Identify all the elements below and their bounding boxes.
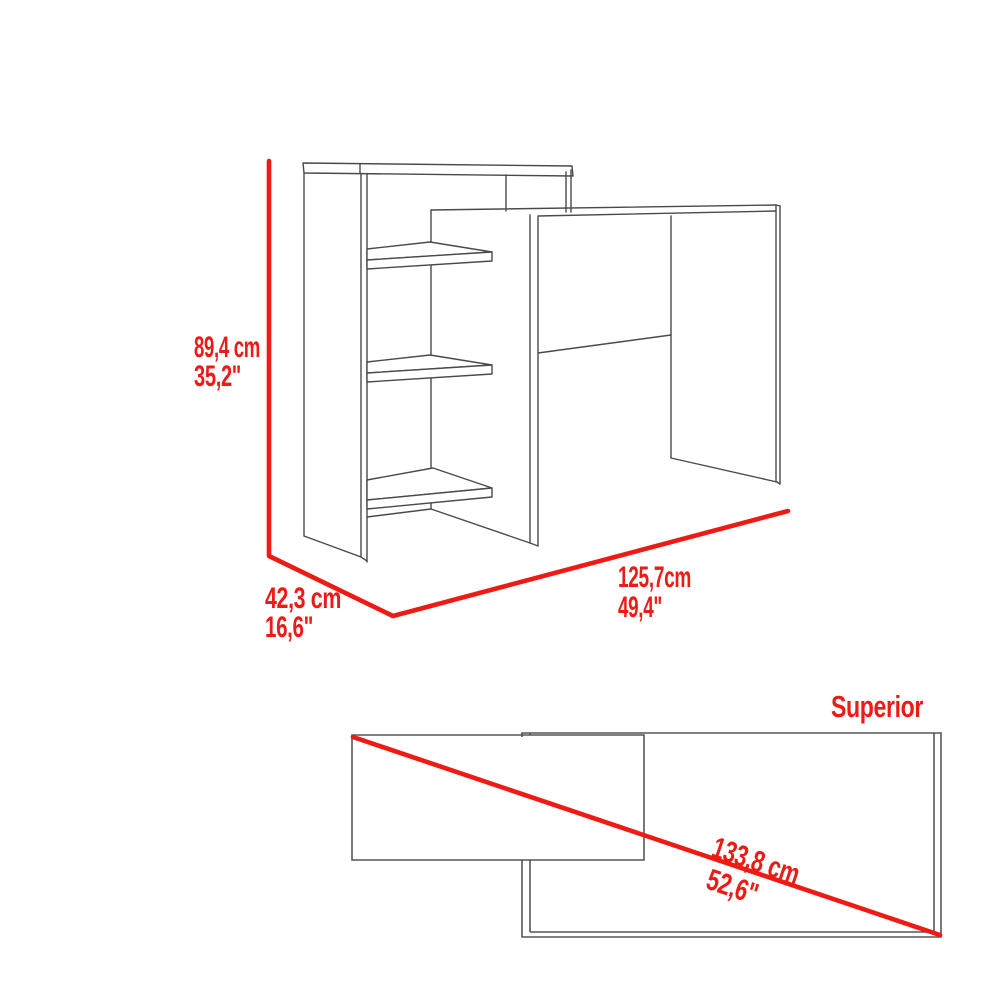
diagram-canvas: 89,4 cm 35,2" 42,3 cm 16,6" 125,7cm 49,4… (0, 0, 1000, 1000)
bookcase-floor-edge-left (367, 509, 431, 517)
height-depth-width-dimension-line (269, 161, 788, 616)
desk-top-front-edge (538, 211, 776, 216)
dimension-lines (269, 161, 788, 616)
shelf-top (367, 242, 492, 269)
bookcase-left-panel-bottom-edge (304, 536, 367, 561)
desk-back-stretcher (538, 335, 671, 353)
bookcase-top-slab (303, 163, 573, 176)
depth-inches-label: 16,6" (265, 611, 313, 644)
top-view-title: Superior (831, 689, 923, 724)
desk-right-panel-bottom-edge (671, 458, 777, 482)
shelf-bottom (367, 468, 492, 509)
isometric-view (303, 163, 780, 562)
height-inches-label: 35,2" (194, 360, 241, 393)
width-cm-label: 125,7cm (618, 561, 691, 594)
shelf-middle (367, 355, 492, 382)
diagram-page: 89,4 cm 35,2" 42,3 cm 16,6" 125,7cm 49,4… (0, 0, 1000, 1000)
top-view: 133,8 cm 52,6" Superior (352, 689, 941, 937)
desk-left-panel-bottom-edge (530, 543, 538, 546)
bookcase-floor-edge-right (431, 509, 530, 543)
desk-top-back-edge (431, 205, 776, 210)
width-inches-label: 49,4" (618, 591, 662, 624)
